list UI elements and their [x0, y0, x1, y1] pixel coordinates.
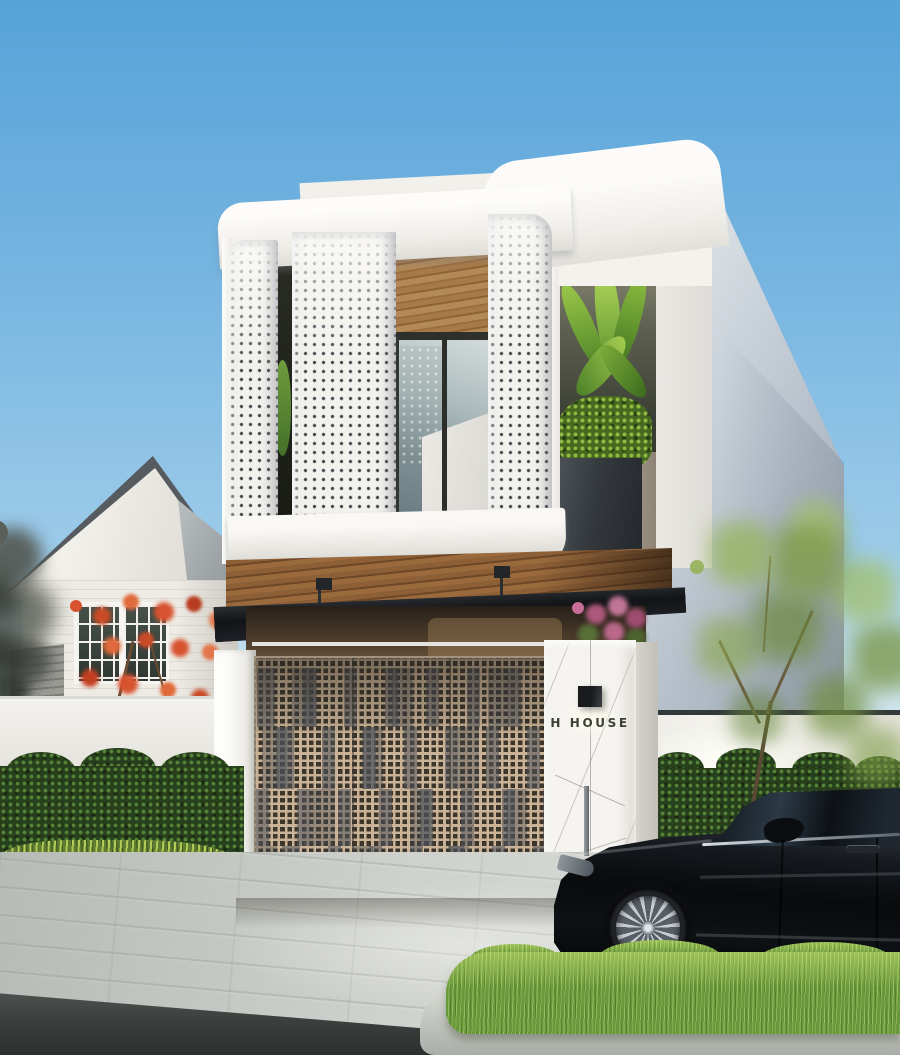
glass-door-mullion: [442, 336, 447, 526]
neighbour-window: [74, 602, 122, 684]
neighbour-window: [121, 602, 169, 684]
sign-text: H HOUSE: [544, 716, 636, 730]
grey-tree: [0, 520, 8, 546]
car-door-seam: [876, 838, 878, 948]
perforated-screen-center: [292, 232, 396, 530]
balcony-opening: [394, 244, 496, 526]
gate-shade: [256, 658, 548, 742]
canopy-bracket: [494, 566, 510, 578]
perforated-screen-left: [228, 240, 278, 544]
dark-planter: [558, 458, 642, 564]
pink-bougainvillea: [572, 602, 584, 614]
gate-bar-row: [256, 789, 548, 846]
tree-foliage: [690, 560, 704, 574]
canopy-bracket: [316, 578, 332, 590]
sign-post-pole: [584, 786, 589, 856]
car-wheel-hub: [641, 921, 655, 935]
perforated-screen-corner: [488, 214, 552, 544]
gate-top-rail: [252, 642, 548, 646]
architectural-render: H HOUSE: [0, 0, 900, 1055]
lawn-strip: [446, 952, 900, 1034]
gate-shadow: [236, 898, 566, 928]
red-shrub: [70, 600, 82, 612]
car-door-handle: [846, 846, 880, 853]
wall-lamp: [578, 686, 602, 707]
